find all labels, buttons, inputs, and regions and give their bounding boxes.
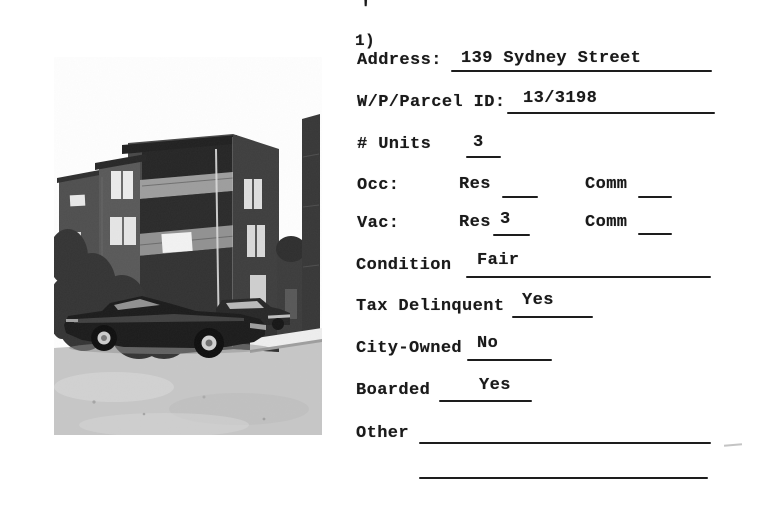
units-label: # Units <box>357 136 431 153</box>
scanned-survey-card: ' 1) Address: 139 Sydney Street W/P/Parc… <box>0 0 768 506</box>
address-label: Address: <box>357 52 442 69</box>
city-owned-value: No <box>477 335 498 352</box>
parcel-id-underline <box>507 112 715 114</box>
vacant-res-underline <box>493 234 530 236</box>
tax-delinquent-underline <box>512 316 593 318</box>
boarded-value: Yes <box>479 377 511 394</box>
address-value: 139 Sydney Street <box>461 50 641 67</box>
city-owned-label: City-Owned <box>356 340 462 357</box>
occupied-label: Occ: <box>357 177 399 194</box>
boarded-underline <box>439 400 532 402</box>
condition-label: Condition <box>356 257 451 274</box>
other-label: Other <box>356 425 409 442</box>
condition-underline <box>466 276 711 278</box>
other-underline-2 <box>419 477 708 479</box>
other-underline <box>419 442 711 444</box>
address-underline <box>451 70 712 72</box>
occupied-res-label: Res <box>459 176 491 193</box>
occupied-res-underline <box>502 196 538 198</box>
vacant-label: Vac: <box>357 215 399 232</box>
condition-value: Fair <box>477 252 519 269</box>
item-number: 1) <box>355 33 375 49</box>
stray-apostrophe-mark: ' <box>360 0 372 19</box>
units-value: 3 <box>473 134 484 151</box>
property-photo <box>54 57 322 435</box>
occupied-comm-underline <box>638 196 672 198</box>
scan-artifact-mark <box>724 443 742 447</box>
units-underline <box>466 156 501 158</box>
city-owned-underline <box>467 359 552 361</box>
vacant-res-label: Res <box>459 214 491 231</box>
parcel-id-label: W/P/Parcel ID: <box>357 94 505 111</box>
parcel-id-value: 13/3198 <box>523 90 597 107</box>
vacant-res-value: 3 <box>500 211 511 228</box>
tax-delinquent-value: Yes <box>522 292 554 309</box>
vacant-comm-underline <box>638 233 672 235</box>
boarded-label: Boarded <box>356 382 430 399</box>
vacant-comm-label: Comm <box>585 214 627 231</box>
tax-delinquent-label: Tax Delinquent <box>356 298 504 315</box>
occupied-comm-label: Comm <box>585 176 627 193</box>
